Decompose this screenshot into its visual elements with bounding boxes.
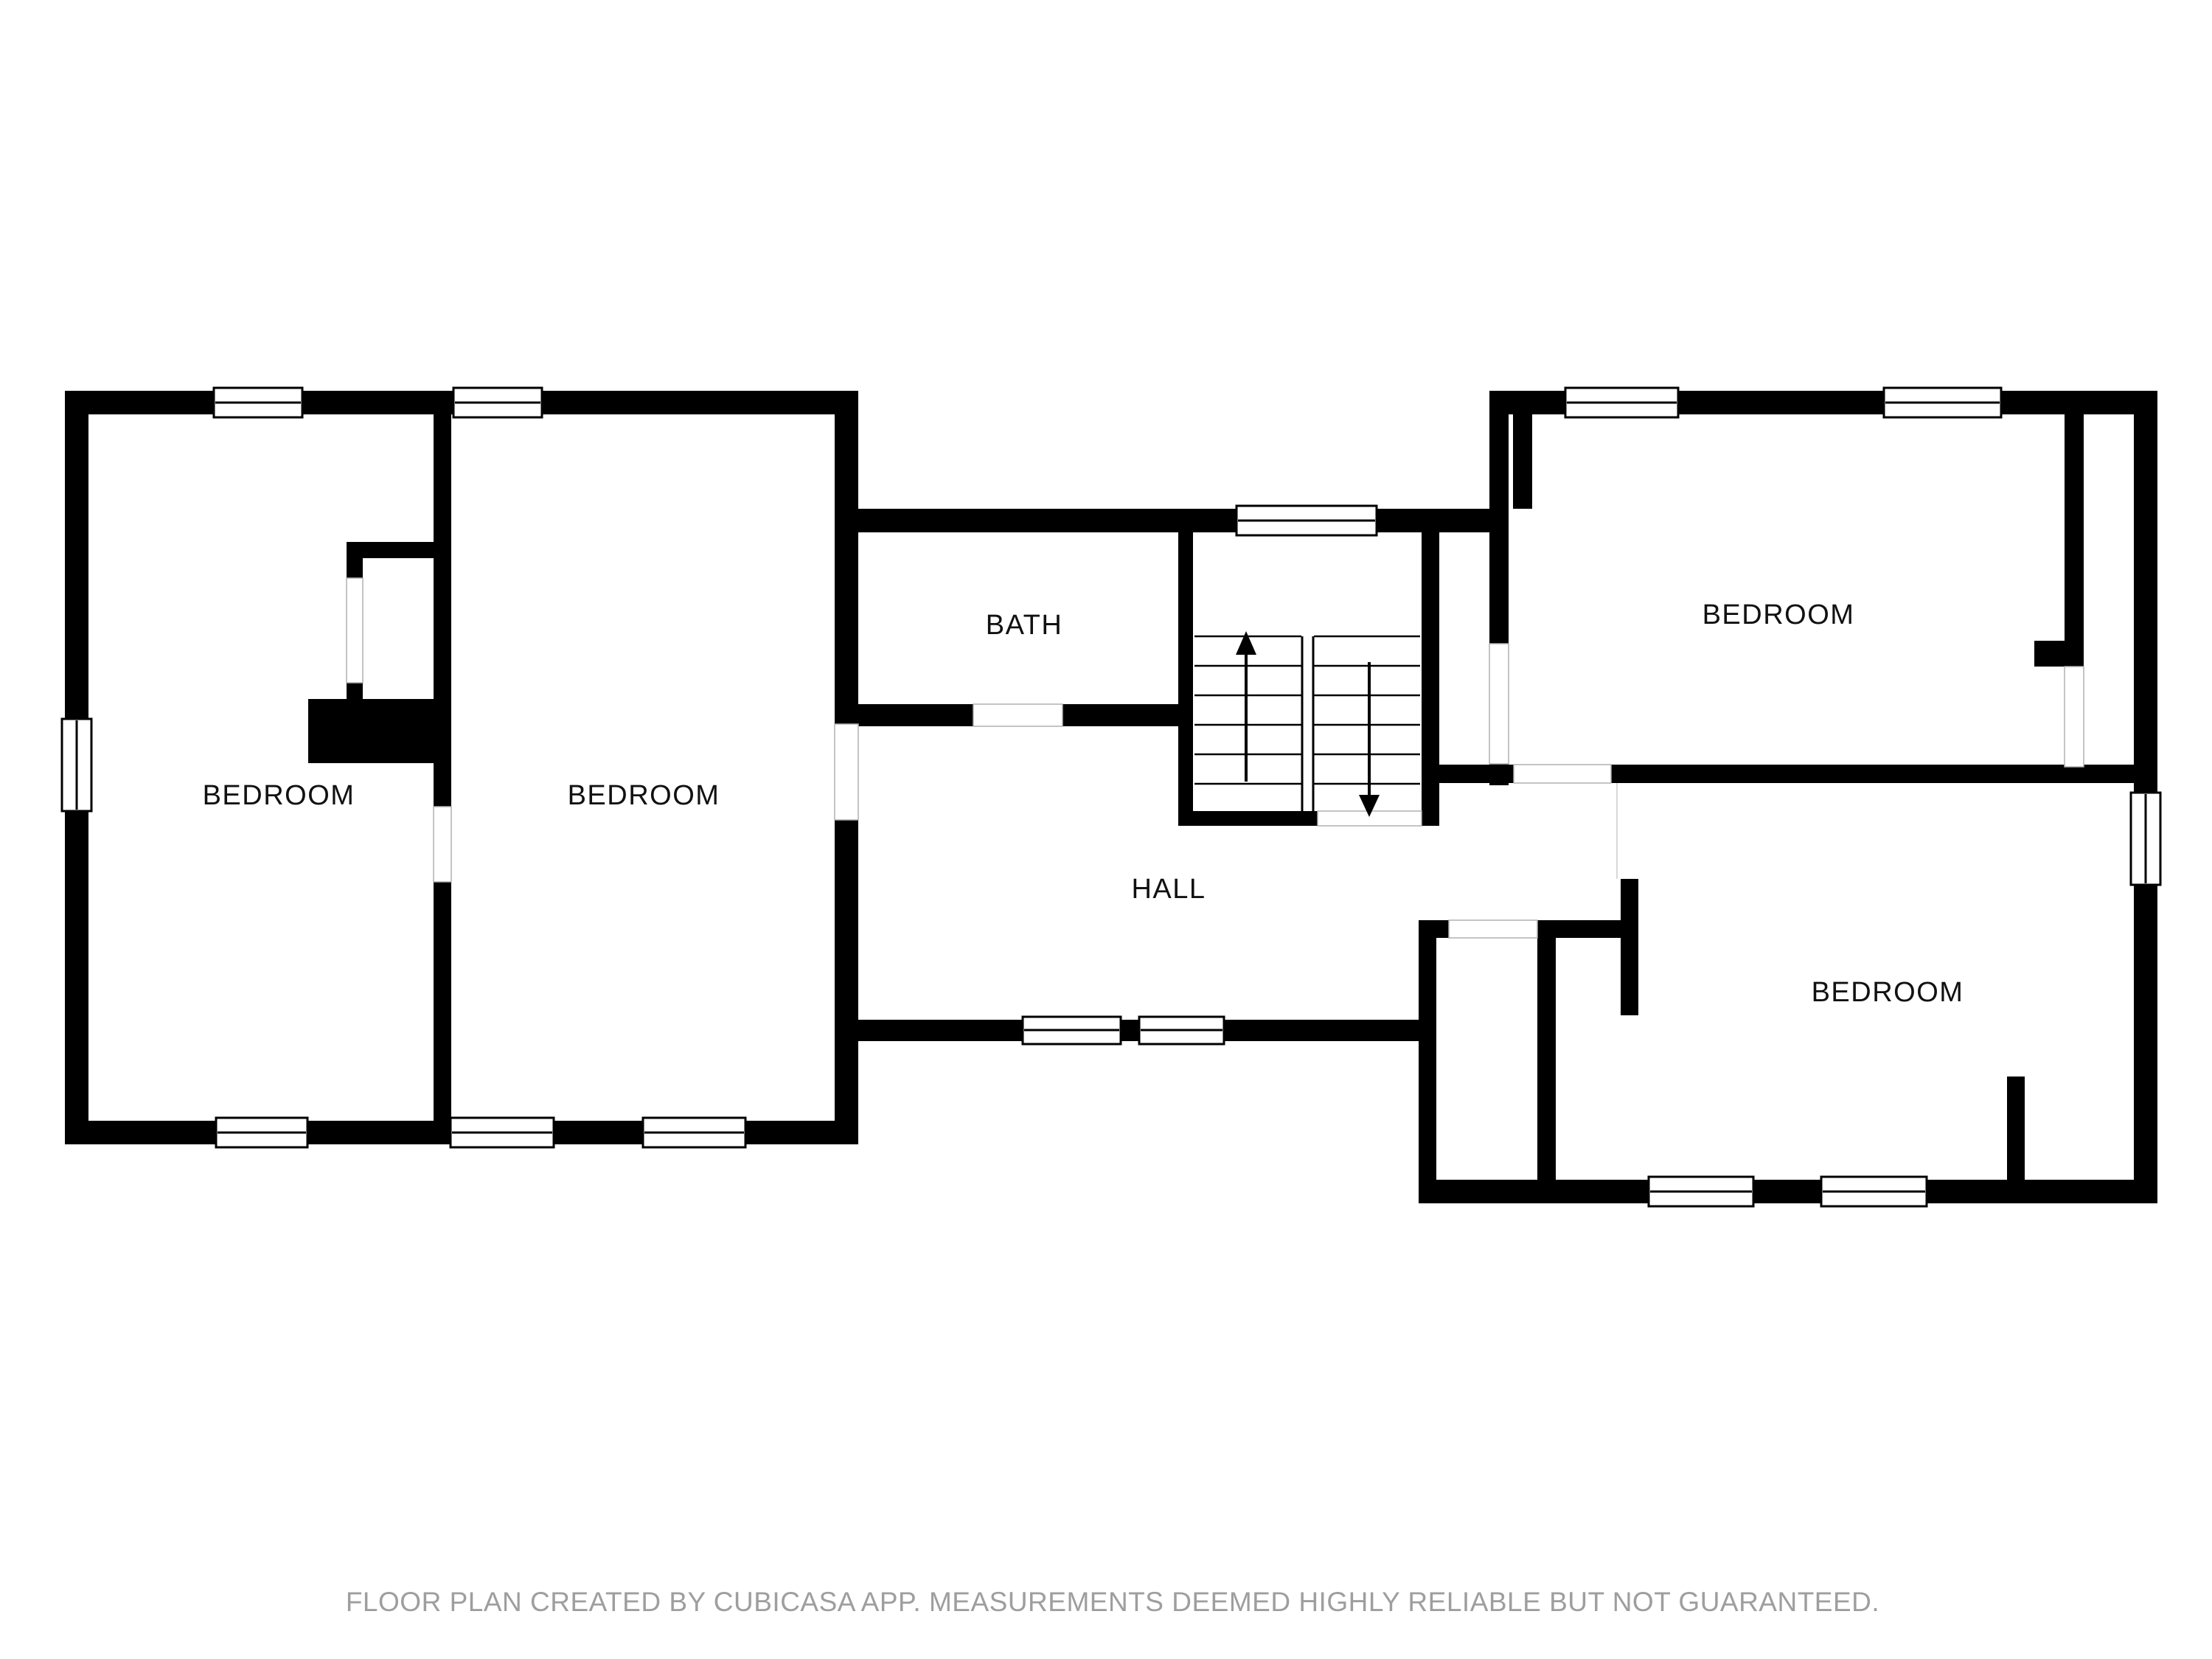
staircase (1194, 631, 1420, 817)
window (1139, 1017, 1224, 1044)
chimney-block (308, 699, 451, 763)
stairs-down-arrow-icon (1359, 662, 1380, 817)
door-opening (347, 578, 363, 683)
stairs-up-arrow-icon (1236, 631, 1256, 782)
door-opening (835, 724, 858, 820)
window (216, 1118, 307, 1147)
wall-segment (347, 683, 363, 699)
room-label-bedroom-center: BEDROOM (568, 780, 720, 811)
wall-segment (2134, 391, 2157, 793)
footer-disclaimer: FLOOR PLAN CREATED BY CUBICASA APP. MEAS… (346, 1587, 1879, 1617)
door-openings (347, 578, 2084, 938)
door-opening (973, 704, 1062, 726)
wall-segment (1513, 414, 1532, 509)
wall-segment (1489, 414, 1509, 644)
wall-segment (858, 704, 973, 726)
room-label-bedroom-left: BEDROOM (203, 780, 355, 811)
wall-segment (2034, 641, 2084, 667)
wall-segment (1422, 765, 1514, 783)
door-opening (2065, 667, 2084, 767)
window (643, 1118, 745, 1147)
wall-segment (1927, 1180, 2134, 1203)
wall-segment (1611, 765, 2134, 783)
wall-segment (347, 558, 363, 578)
stair-divider (1302, 636, 1313, 811)
room-label-bath: BATH (986, 610, 1063, 641)
wall-segment (347, 542, 434, 558)
window (214, 388, 302, 417)
window (1884, 388, 2001, 417)
door-opening (1514, 765, 1611, 783)
door-opening (1449, 920, 1537, 938)
wall-segment (1753, 1180, 1821, 1203)
wall-segment (1224, 1020, 1436, 1041)
room-labels: BEDROOM BEDROOM BATH HALL BEDROOM BEDROO… (203, 599, 1964, 1008)
window (1023, 1017, 1121, 1044)
door-opening (1489, 644, 1509, 764)
wall-segment (2134, 885, 2157, 1203)
wall-segment (1178, 509, 1193, 826)
wall-segment (2007, 1077, 2025, 1180)
wall-segment (1178, 811, 1318, 826)
floor-plan-canvas: BEDROOM BEDROOM BATH HALL BEDROOM BEDROO… (0, 0, 2212, 1659)
door-opening (434, 807, 451, 882)
window (1565, 388, 1678, 417)
wall-segment (1436, 920, 1449, 938)
wall-segment (858, 1020, 1023, 1041)
wall-segment (1621, 879, 1638, 1015)
wall-segment (2065, 414, 2084, 641)
room-label-bedroom-top-right: BEDROOM (1703, 599, 1855, 630)
room-label-hall: HALL (1131, 874, 1206, 905)
wall-segment (1121, 1020, 1139, 1041)
wall-segment (1419, 1180, 1649, 1203)
wall-segment (1537, 938, 1556, 1180)
window (453, 388, 542, 417)
window (1821, 1177, 1927, 1206)
window (2131, 793, 2160, 885)
window (1649, 1177, 1753, 1206)
stair-treads (1194, 636, 1420, 784)
window (62, 719, 91, 811)
window (1237, 506, 1377, 535)
window (451, 1118, 554, 1147)
wall-segment (1537, 920, 1622, 938)
walls (65, 391, 2157, 1203)
wall-segment (1062, 704, 1184, 726)
wall-segment (835, 391, 858, 724)
wall-segment (1489, 391, 1565, 414)
room-label-bedroom-bottom-right: BEDROOM (1812, 977, 1964, 1008)
wall-segment (1678, 391, 1884, 414)
wall-segment (434, 882, 451, 1144)
wall-segment (1419, 920, 1436, 1180)
wall-segment (835, 820, 858, 1144)
